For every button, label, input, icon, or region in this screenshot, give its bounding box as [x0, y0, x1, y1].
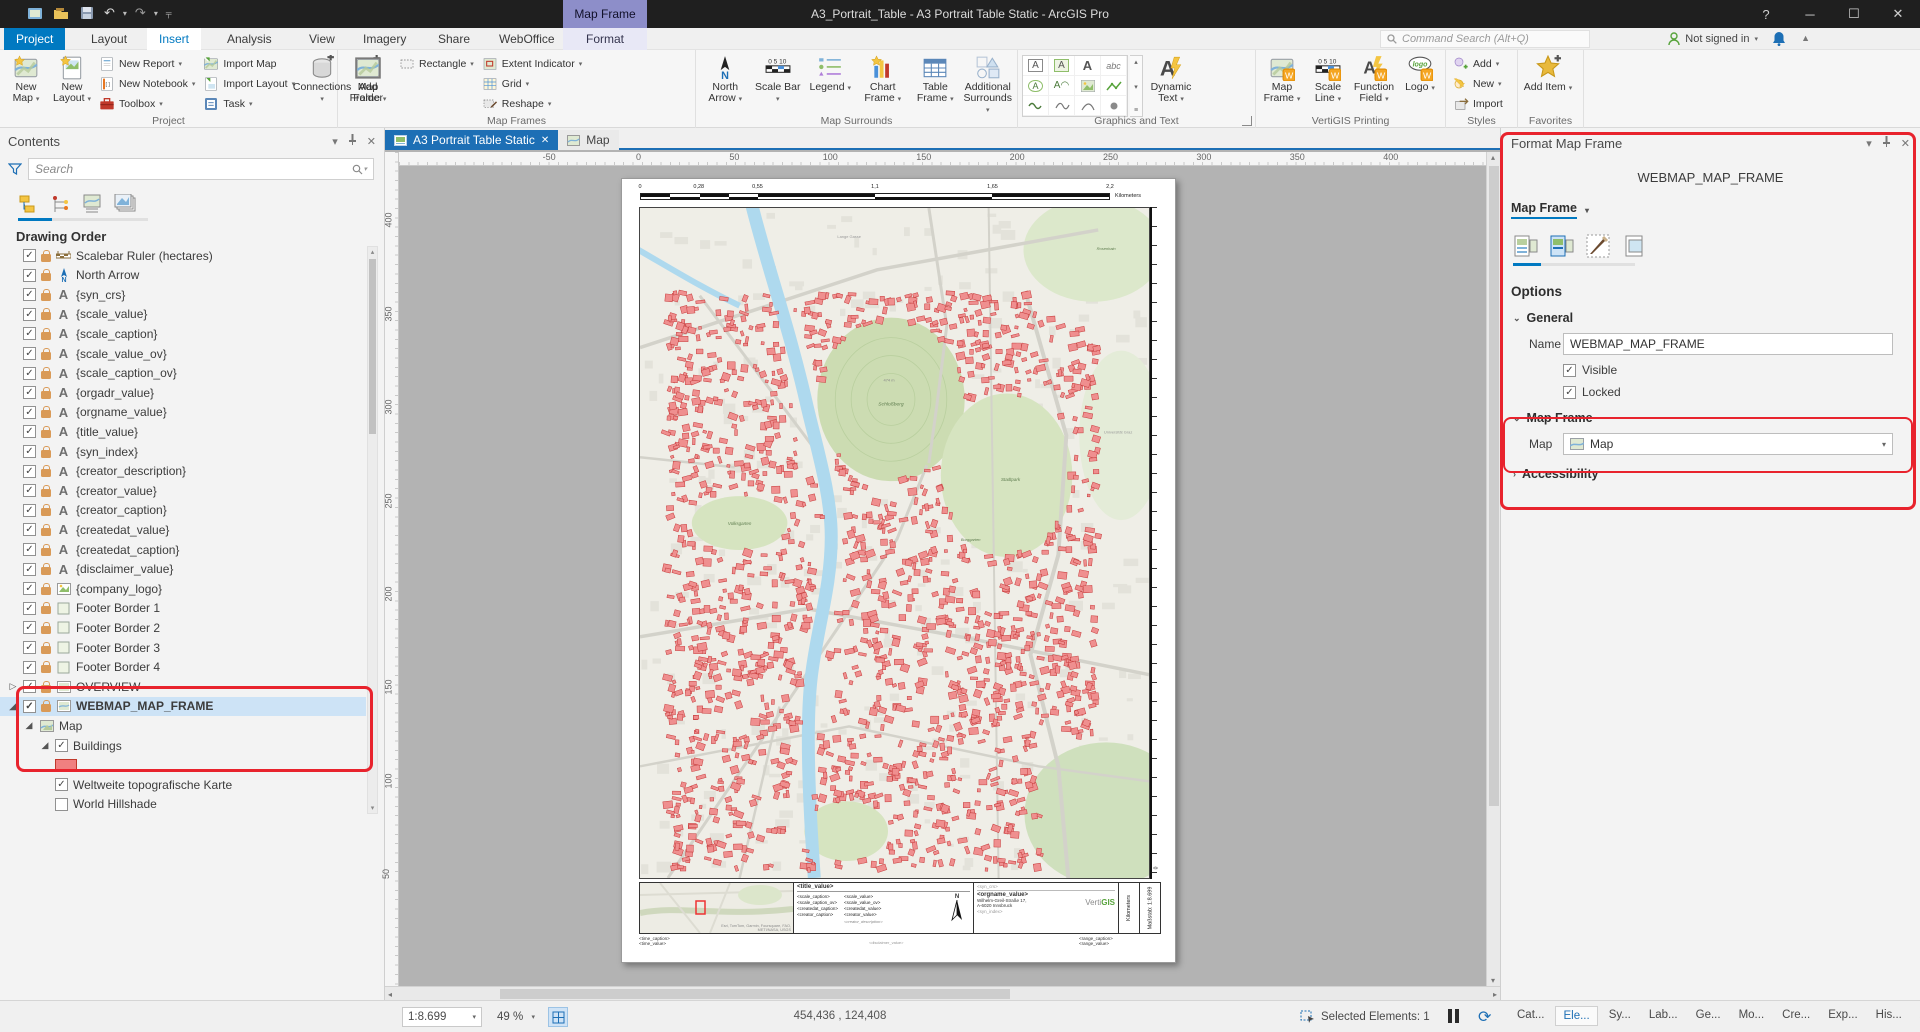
titlebar: ↶▾ ↷▾ ╤ Map Frame A3_Portrait_Table - A3… [0, 0, 1920, 28]
lock-icon [41, 685, 51, 693]
ribbon-tab-share[interactable]: Share [426, 28, 482, 50]
gallery-item-wave[interactable] [1023, 96, 1049, 116]
lock-icon [41, 508, 51, 516]
layer-label: Footer Border 2 [76, 621, 160, 635]
panel-tab-sy[interactable]: Sy... [1602, 1006, 1638, 1026]
masstab-cell: Maßstab: 1:8.699 [1140, 882, 1161, 934]
vertical-ruler: 40035030025020015010050 [385, 152, 399, 986]
ribbon-button-new-report[interactable]: New Report▾ [96, 55, 198, 73]
locked-checkbox[interactable]: ✓ [1563, 386, 1576, 399]
ribbon-button-scale-bar[interactable]: 0 5 10Scale Bar ▾ [753, 53, 804, 113]
ribbon-button-toolbox[interactable]: Toolbox▾ [96, 95, 198, 113]
panel-tab-lab[interactable]: Lab... [1642, 1006, 1685, 1026]
svg-text:N: N [61, 277, 66, 282]
ribbon-group-label: Styles [1446, 115, 1517, 127]
map-label: Map [1529, 437, 1563, 451]
layer-tree-item--creator-caption-[interactable]: ✓A{creator_caption} [0, 501, 366, 520]
ribbon-group-map-surrounds: NNorth Arrow ▾0 5 10Scale Bar ▾Legend ▾C… [696, 50, 1018, 128]
panel-tab-cat[interactable]: Cat... [1510, 1006, 1551, 1026]
layer-tree-item-map[interactable]: ◢Map [0, 716, 366, 735]
mapframe-icon [56, 700, 71, 712]
svg-text:A: A [1363, 57, 1376, 77]
layer-label: North Arrow [76, 268, 139, 282]
layer-tree-item--scale-caption-[interactable]: ✓A{scale_caption} [0, 324, 366, 343]
ribbon-button-new-layout[interactable]: New Layout ▾ [50, 53, 94, 113]
footer-table: <title_value> <scale_caption><scale_capt… [794, 882, 974, 934]
layer-label: Map [59, 719, 82, 733]
section-accessibility[interactable]: ›Accessibility [1513, 467, 1920, 481]
lock-icon [41, 352, 51, 360]
redo-button[interactable]: ↷ [135, 5, 146, 21]
ribbon-button-map-frame[interactable]: WMap Frame ▾ [1260, 53, 1304, 113]
layer-checkbox[interactable]: ✓ [23, 327, 36, 340]
layer-label: {syn_index} [76, 445, 138, 459]
gallery-item-squiggle[interactable] [1049, 96, 1075, 116]
layer-checkbox[interactable]: ✓ [23, 347, 36, 360]
ribbon-group-favorites: Add Item ▾Favorites [1518, 50, 1584, 128]
layer-label: {createdat_caption} [76, 543, 179, 557]
view-tab-a3-portrait-table-static[interactable]: A3 Portrait Table Static✕ [385, 130, 558, 150]
layer-checkbox[interactable]: ✓ [23, 621, 36, 634]
horizontal-scrollbar[interactable]: ◂▸ [385, 986, 1500, 1000]
project-icon[interactable] [26, 4, 44, 22]
undo-button[interactable]: ↶ [104, 5, 115, 21]
text-icon: A [56, 542, 71, 557]
lock-icon [41, 587, 51, 595]
vertigis-logo: VertiGIS [1085, 898, 1115, 907]
layer-label: {scale_value_ov} [76, 347, 167, 361]
text-icon: A [56, 424, 71, 439]
redo-caret[interactable]: ▾ [154, 9, 158, 18]
layer-label: Footer Border 3 [76, 641, 160, 655]
ribbon-button-import[interactable]: Import [1450, 95, 1506, 113]
ribbon-group-graphics-and-text: AAAabcAA◠▴▾≡ADynamic Text ▾Graphics and … [1018, 50, 1256, 128]
layer-checkbox[interactable]: ✓ [23, 641, 36, 654]
ribbon-group-label: Map Surrounds [696, 115, 1017, 127]
layer-label: {orgadr_value} [76, 386, 154, 400]
svg-text:Stadtpark: Stadtpark [1001, 477, 1021, 482]
layer-tree-item--createdat-value-[interactable]: ✓A{createdat_value} [0, 520, 366, 539]
sign-in-status[interactable]: Not signed in▾ [1668, 30, 1758, 48]
gallery-item-picture[interactable] [1075, 76, 1101, 96]
layer-tree-item-footer-border-3[interactable]: ✓Footer Border 3 [0, 638, 366, 657]
filter-icon[interactable] [8, 163, 22, 175]
open-project-icon[interactable] [52, 4, 70, 22]
contents-scrollbar[interactable]: ▴ ▾ [367, 246, 378, 814]
layout-page[interactable]: 00,280,551,11,652,2 Kilometers Schloßber… [621, 178, 1176, 963]
status-bar: 1:8.699▾ 49 %▾ 454,436 , 124,408 Selecte… [0, 1000, 1920, 1032]
scalebar [640, 193, 1110, 200]
layer-tree-item--orgname-value-[interactable]: ✓A{orgname_value} [0, 403, 366, 422]
syn-crs-placeholder: <syn_crs> [977, 884, 1115, 891]
ribbon-button-task[interactable]: Task▾ [200, 95, 298, 113]
map-scale-combo[interactable]: 1:8.699▾ [402, 1007, 482, 1027]
layer-label: World Hillshade [73, 797, 157, 811]
rect-icon [56, 641, 71, 654]
text-icon: A [56, 503, 71, 518]
layer-label: {scale_caption} [76, 327, 157, 341]
ribbon-tab-format[interactable]: Format [563, 28, 647, 50]
view-tab-map[interactable]: Map [558, 130, 618, 150]
text-icon: A [56, 444, 71, 459]
layer-tree-item--syn-index-[interactable]: ✓A{syn_index} [0, 442, 366, 461]
layer-checkbox[interactable]: ✓ [23, 523, 36, 536]
layout-view: A3 Portrait Table Static✕Map -5005010015… [385, 128, 1500, 1000]
layer-checkbox[interactable]: ✓ [23, 465, 36, 478]
rect-icon [56, 621, 71, 634]
layer-checkbox[interactable]: ✓ [23, 425, 36, 438]
panel-menu-caret[interactable]: ▾ [332, 135, 338, 148]
ribbon-group-styles: Add▾New▾ImportStyles [1446, 50, 1518, 128]
panel-tab-ge[interactable]: Ge... [1689, 1006, 1728, 1026]
kilometers-cell: Kilometers [1119, 882, 1140, 934]
map-icon [1570, 438, 1584, 450]
options-heading: Options [1511, 284, 1920, 299]
refresh-view-icon[interactable]: ⟳ [1478, 1007, 1491, 1027]
layer-checkbox[interactable]: ✓ [23, 386, 36, 399]
svg-text:logo: logo [1413, 61, 1429, 68]
panel-tab-mo[interactable]: Mo... [1732, 1006, 1772, 1026]
list-by-element-icon[interactable] [82, 192, 106, 216]
svg-text:474 m: 474 m [884, 377, 896, 382]
layer-checkbox[interactable]: ✓ [23, 249, 36, 262]
layer-label: WEBMAP_MAP_FRAME [76, 699, 213, 713]
layer-tree: ✓Scalebar Ruler (hectares)✓NNorth Arrow✓… [0, 246, 384, 814]
layer-label: {creator_caption} [76, 503, 167, 517]
ribbon-tab-analysis[interactable]: Analysis [215, 28, 284, 50]
selected-elements-status[interactable]: Selected Elements: 1 [1300, 1010, 1430, 1023]
title-placeholder: <title_value> [797, 884, 970, 892]
legend-swatch-row[interactable] [0, 756, 366, 775]
layer-tree-item--creator-description-[interactable]: ✓A{creator_description} [0, 462, 366, 481]
gallery-item-plain-a[interactable]: A [1075, 56, 1101, 76]
layer-tree-item-north-arrow[interactable]: ✓NNorth Arrow [0, 266, 366, 285]
gallery-item-boxed-a[interactable]: A [1023, 56, 1049, 76]
list-by-drawing-order-icon[interactable] [18, 192, 42, 216]
ribbon-tab-project[interactable]: Project [4, 28, 65, 50]
text-icon: A [56, 326, 71, 341]
gallery-item-circle-a[interactable]: A [1023, 76, 1049, 96]
contents-search-input[interactable]: Search ▾ [28, 158, 374, 180]
panel-tab-cre[interactable]: Cre... [1775, 1006, 1817, 1026]
layer-checkbox[interactable]: ✓ [55, 739, 68, 752]
scalebar-icon [56, 251, 71, 261]
layer-tree-item--scale-value-ov-[interactable]: ✓A{scale_value_ov} [0, 344, 366, 363]
lock-icon [41, 528, 51, 536]
maximize-button[interactable]: ☐ [1832, 0, 1876, 28]
layer-checkbox[interactable]: ✓ [23, 269, 36, 282]
syn-index-placeholder: <syn_index> [977, 909, 1028, 914]
lock-icon [41, 254, 51, 262]
search-icon [352, 164, 363, 175]
layer-checkbox[interactable]: ✓ [23, 680, 36, 693]
lock-icon [41, 273, 51, 281]
lock-icon [41, 489, 51, 497]
close-button[interactable]: ✕ [1876, 0, 1920, 28]
layer-checkbox[interactable]: ✓ [23, 367, 36, 380]
format-map-frame-panel: Format Map Frame ▾ ✕ WEBMAP_MAP_FRAME Ma… [1500, 128, 1920, 1000]
layer-label: {scale_caption_ov} [76, 366, 177, 380]
layer-label: {orgname_value} [76, 405, 167, 419]
lock-icon [41, 312, 51, 320]
overview-attribution: Esri, TomTom, Garmin, Foursquare, FAO, M… [711, 924, 791, 932]
layer-label: Footer Border 1 [76, 601, 160, 615]
ribbon-button-scale-line[interactable]: 0 5 10WScale Line ▾ [1306, 53, 1350, 113]
graphics-gallery: AAAabcAA◠ [1022, 55, 1128, 117]
layer-tree-item--title-value-[interactable]: ✓A{title_value} [0, 422, 366, 441]
text-icon: A [56, 405, 71, 420]
layer-checkbox[interactable]: ✓ [23, 504, 36, 517]
map-frame-graphic[interactable]: Schloßberg474 mStadtparkVolksgartenBurgg… [639, 207, 1150, 879]
layer-tree-item--scale-value-[interactable]: ✓A{scale_value} [0, 305, 366, 324]
ribbon-button-new[interactable]: New▾ [1450, 75, 1506, 93]
ribbon-button-new-map[interactable]: New Map ▾ [4, 53, 48, 113]
ribbon-button-grid[interactable]: Grid▾ [479, 75, 585, 93]
vertical-scrollbar[interactable]: ▴▾ [1486, 152, 1500, 986]
panel-tab-his[interactable]: His... [1869, 1006, 1909, 1026]
layer-checkbox[interactable]: ✓ [23, 406, 36, 419]
svg-text:Volksgarten: Volksgarten [728, 521, 752, 526]
name-label: Name [1529, 337, 1563, 351]
ribbon: New Map ▾New Layout ▾New Report▾[ ]New N… [0, 50, 1920, 128]
text-icon: A [56, 522, 71, 537]
ribbon-button-additional-surrounds[interactable]: Additional Surrounds ▾ [963, 53, 1014, 113]
selection-icon [1300, 1010, 1315, 1023]
layer-tree-item-scalebar-ruler-hectares-[interactable]: ✓Scalebar Ruler (hectares) [0, 246, 366, 265]
lock-icon [41, 371, 51, 379]
layer-checkbox[interactable]: ✓ [23, 308, 36, 321]
svg-text:[ ]: [ ] [105, 82, 110, 88]
svg-text:Schloßberg: Schloßberg [878, 401, 904, 407]
map-icon [39, 720, 54, 732]
text-icon: A [56, 307, 71, 322]
ribbon-group-label: Project [0, 115, 337, 127]
lock-icon [41, 567, 51, 575]
arcgis-pro-window: ↶▾ ↷▾ ╤ Map Frame A3_Portrait_Table - A3… [0, 0, 1920, 1032]
layer-tree-item-overview[interactable]: ▷✓OVERVIEW [0, 677, 366, 696]
north-arrow-graphic: N [944, 894, 970, 924]
layer-tree-item-footer-border-4[interactable]: ✓Footer Border 4 [0, 658, 366, 677]
text-icon: A [56, 464, 71, 479]
gallery-item-callout-a[interactable]: A◠ [1049, 76, 1075, 96]
name-input[interactable]: WEBMAP_MAP_FRAME [1563, 333, 1893, 355]
layer-checkbox[interactable]: ✓ [23, 661, 36, 674]
text-icon: A [56, 483, 71, 498]
layer-tree-item-footer-border-2[interactable]: ✓Footer Border 2 [0, 618, 366, 637]
ribbon-button-import-map[interactable]: Import Map [200, 55, 298, 73]
map-dropdown[interactable]: Map▾ [1563, 433, 1893, 455]
ribbon-tab-imagery[interactable]: Imagery [351, 28, 418, 50]
layer-checkbox[interactable]: ✓ [23, 602, 36, 615]
layer-checkbox[interactable]: ✓ [23, 484, 36, 497]
ribbon-tab-layout[interactable]: Layout [79, 28, 139, 50]
minimize-button[interactable]: ─ [1788, 0, 1832, 28]
lock-icon [41, 450, 51, 458]
person-icon [1668, 32, 1680, 46]
layer-tree-item--syn-crs-[interactable]: ✓A{syn_crs} [0, 285, 366, 304]
layer-tree-item-footer-border-1[interactable]: ✓Footer Border 1 [0, 599, 366, 618]
command-search-input[interactable]: Command Search (Alt+Q) [1380, 30, 1590, 48]
window-title: A3_Portrait_Table - A3 Portrait Table St… [0, 0, 1920, 28]
pin-icon[interactable] [348, 134, 357, 148]
footer-org-cell: <syn_crs> <orgname_value> Wilhelm-Greil-… [974, 882, 1119, 934]
layer-tree-item--creator-value-[interactable]: ✓A{creator_value} [0, 481, 366, 500]
lock-icon [41, 293, 51, 301]
layer-checkbox[interactable] [55, 798, 68, 811]
layer-checkbox[interactable]: ✓ [23, 582, 36, 595]
overview-map: Esri, TomTom, Garmin, Foursquare, FAO, M… [639, 882, 794, 934]
layer-label: Footer Border 4 [76, 660, 160, 674]
layer-checkbox[interactable]: ✓ [23, 543, 36, 556]
customize-qat-caret[interactable]: ╤ [166, 9, 172, 18]
list-by-source-icon[interactable] [50, 192, 74, 216]
layer-label: Weltweite topografische Karte [73, 778, 232, 792]
layer-label: Buildings [73, 739, 122, 753]
ribbon-group-vertigis-printing: WMap Frame ▾0 5 10WScale Line ▾AWFunctio… [1256, 50, 1446, 128]
close-tab-icon[interactable]: ✕ [541, 135, 549, 146]
pause-drawing-button[interactable] [1448, 1009, 1459, 1023]
vertical-scalebar-ruler: 0 [1150, 207, 1164, 879]
svg-text:W: W [1377, 70, 1386, 80]
scalebar-unit-label: Kilometers [1115, 193, 1141, 199]
layer-label: OVERVIEW [76, 680, 140, 694]
text-icon: A [56, 562, 71, 577]
ribbon-button-extent-indicator[interactable]: Extent Indicator▾ [479, 55, 585, 73]
panel-menu-caret[interactable]: ▾ [1866, 137, 1872, 150]
layer-tree-item--createdat-caption-[interactable]: ✓A{createdat_caption} [0, 540, 366, 559]
tab-symbol-icon[interactable] [1585, 233, 1611, 259]
pin-icon[interactable] [1882, 136, 1891, 150]
ribbon-tab-insert[interactable]: Insert [147, 28, 201, 50]
lock-icon [41, 410, 51, 418]
close-panel-icon[interactable]: ✕ [1901, 137, 1910, 150]
layer-label: {scale_value} [76, 307, 147, 321]
ribbon-button-reshape[interactable]: Reshape▾ [479, 95, 585, 113]
ribbon-tab-weboffice[interactable]: WebOffice [487, 28, 567, 50]
svg-text:W: W [1285, 70, 1294, 80]
svg-text:W: W [1423, 70, 1432, 80]
layer-tree-item--disclaimer-value-[interactable]: ✓A{disclaimer_value} [0, 560, 366, 579]
list-by-page-icon[interactable] [114, 192, 138, 216]
ribbon-button-function-field[interactable]: AWFunction Field ▾ [1352, 53, 1396, 113]
layer-label: {disclaimer_value} [76, 562, 173, 576]
layer-label: {syn_crs} [76, 288, 125, 302]
map-icon [567, 135, 580, 146]
collapse-ribbon-caret[interactable]: ▲ [1801, 33, 1810, 43]
zoom-level-combo[interactable]: 49 %▾ [492, 1007, 540, 1027]
layout-canvas[interactable]: 00,280,551,11,652,2 Kilometers Schloßber… [399, 166, 1486, 986]
gallery-scrollbar[interactable]: ▴▾≡ [1130, 55, 1143, 117]
ribbon-button-chart-frame[interactable]: Chart Frame ▾ [858, 53, 909, 113]
svg-text:Burggarten: Burggarten [961, 537, 981, 542]
lock-icon [41, 646, 51, 654]
ribbon-button-table-frame[interactable]: Table Frame ▾ [910, 53, 961, 113]
rect-icon [56, 602, 71, 615]
ribbon-button-dynamic-text[interactable]: ADynamic Text ▾ [1145, 53, 1197, 113]
tab-placement-icon[interactable] [1621, 233, 1647, 259]
layer-tree-item-buildings[interactable]: ◢✓Buildings [0, 736, 366, 755]
picture-icon [56, 583, 71, 595]
layer-tree-item--scale-caption-ov-[interactable]: ✓A{scale_caption_ov} [0, 364, 366, 383]
ribbon-group-label: VertiGIS Printing [1256, 115, 1445, 127]
ribbon-button-logo[interactable]: logoWLogo ▾ [1398, 53, 1442, 113]
gallery-item-point[interactable] [1101, 96, 1127, 116]
tab-display-options-icon[interactable] [1549, 233, 1575, 259]
lock-icon [41, 391, 51, 399]
svg-text:N: N [721, 70, 729, 81]
text-icon: A [56, 366, 71, 381]
layer-checkbox[interactable]: ✓ [55, 778, 68, 791]
gallery-item-line-green[interactable] [1101, 76, 1127, 96]
undo-caret[interactable]: ▾ [123, 9, 127, 18]
layer-label: {creator_description} [76, 464, 186, 478]
layer-checkbox[interactable]: ✓ [23, 288, 36, 301]
section-map-frame[interactable]: ⌄Map Frame [1513, 411, 1920, 425]
visible-checkbox[interactable]: ✓ [1563, 364, 1576, 377]
layout-snap-toggle[interactable] [548, 1007, 568, 1027]
ribbon-button-import-layout[interactable]: Import Layout▾ [200, 75, 298, 93]
ribbon-button-north-arrow[interactable]: NNorth Arrow ▾ [700, 53, 751, 113]
ribbon-button-rectangle[interactable]: Rectangle▾ [396, 55, 477, 73]
contextual-tab-group-label: Map Frame [563, 0, 647, 28]
lock-icon [41, 665, 51, 673]
close-panel-icon[interactable]: ✕ [367, 135, 376, 148]
ribbon-button-legend[interactable]: Legend ▾ [805, 53, 856, 113]
tab-options-icon[interactable] [1513, 233, 1539, 259]
layer-tree-item-world-hillshade[interactable]: World Hillshade [0, 795, 366, 814]
drawing-order-heading: Drawing Order [0, 221, 384, 246]
layer-checkbox[interactable]: ✓ [23, 700, 36, 713]
contents-panel: Contents ▾ ✕ Search ▾ Drawing Order ✓Sca… [0, 128, 385, 1000]
selected-element-name: WEBMAP_MAP_FRAME [1501, 170, 1920, 185]
ribbon-button-add[interactable]: Add▾ [1450, 55, 1506, 73]
svg-text:0 5 10: 0 5 10 [768, 59, 786, 66]
layer-tree-item--company-logo-[interactable]: ✓{company_logo} [0, 579, 366, 598]
ribbon-button-new-notebook[interactable]: [ ]New Notebook▾ [96, 75, 198, 93]
layer-checkbox[interactable]: ✓ [23, 445, 36, 458]
layer-label: {title_value} [76, 425, 138, 439]
lock-icon [41, 606, 51, 614]
layer-checkbox[interactable]: ✓ [23, 563, 36, 576]
svg-text:Universität Graz: Universität Graz [1104, 429, 1132, 434]
ribbon-tab-view[interactable]: View [297, 28, 347, 50]
gallery-item-arc[interactable] [1075, 96, 1101, 116]
ribbon-group-map-frames: Map Frame ▾Rectangle▾Extent Indicator▾Gr… [338, 50, 696, 128]
panel-tab-ele[interactable]: Ele... [1555, 1006, 1597, 1026]
layer-tree-item--orgadr-value-[interactable]: ✓A{orgadr_value} [0, 383, 366, 402]
gallery-item-map-a[interactable]: A [1049, 56, 1075, 76]
ribbon-button-map-frame[interactable]: Map Frame ▾ [342, 53, 394, 113]
layout-icon [394, 135, 407, 146]
layer-tree-item-weltweite-topografische-karte[interactable]: ✓Weltweite topografische Karte [0, 775, 366, 794]
layer-label: {createdat_value} [76, 523, 169, 537]
ribbon-group-label: Graphics and Text [1018, 115, 1255, 127]
format-target-selector[interactable]: Map Frame▾ [1511, 201, 1920, 219]
save-icon[interactable] [78, 4, 96, 22]
ribbon-button-add-item[interactable]: Add Item ▾ [1522, 53, 1574, 113]
section-general[interactable]: ⌄General [1513, 311, 1920, 325]
panel-tab-exp[interactable]: Exp... [1821, 1006, 1864, 1026]
svg-text:Rosenhain: Rosenhain [1097, 246, 1117, 251]
gallery-item-curved-text-abc[interactable]: abc [1101, 56, 1127, 76]
buildings-symbol-swatch[interactable] [55, 759, 77, 771]
northarrow-icon: N [56, 268, 71, 282]
notifications-bell-icon[interactable] [1772, 31, 1786, 49]
search-icon [1387, 34, 1397, 44]
layer-tree-item-webmap-map-frame[interactable]: ◢✓WEBMAP_MAP_FRAME [0, 697, 366, 716]
panel-tab-attr[interactable]: Attr... [1913, 1006, 1920, 1026]
help-button[interactable]: ? [1744, 0, 1788, 28]
